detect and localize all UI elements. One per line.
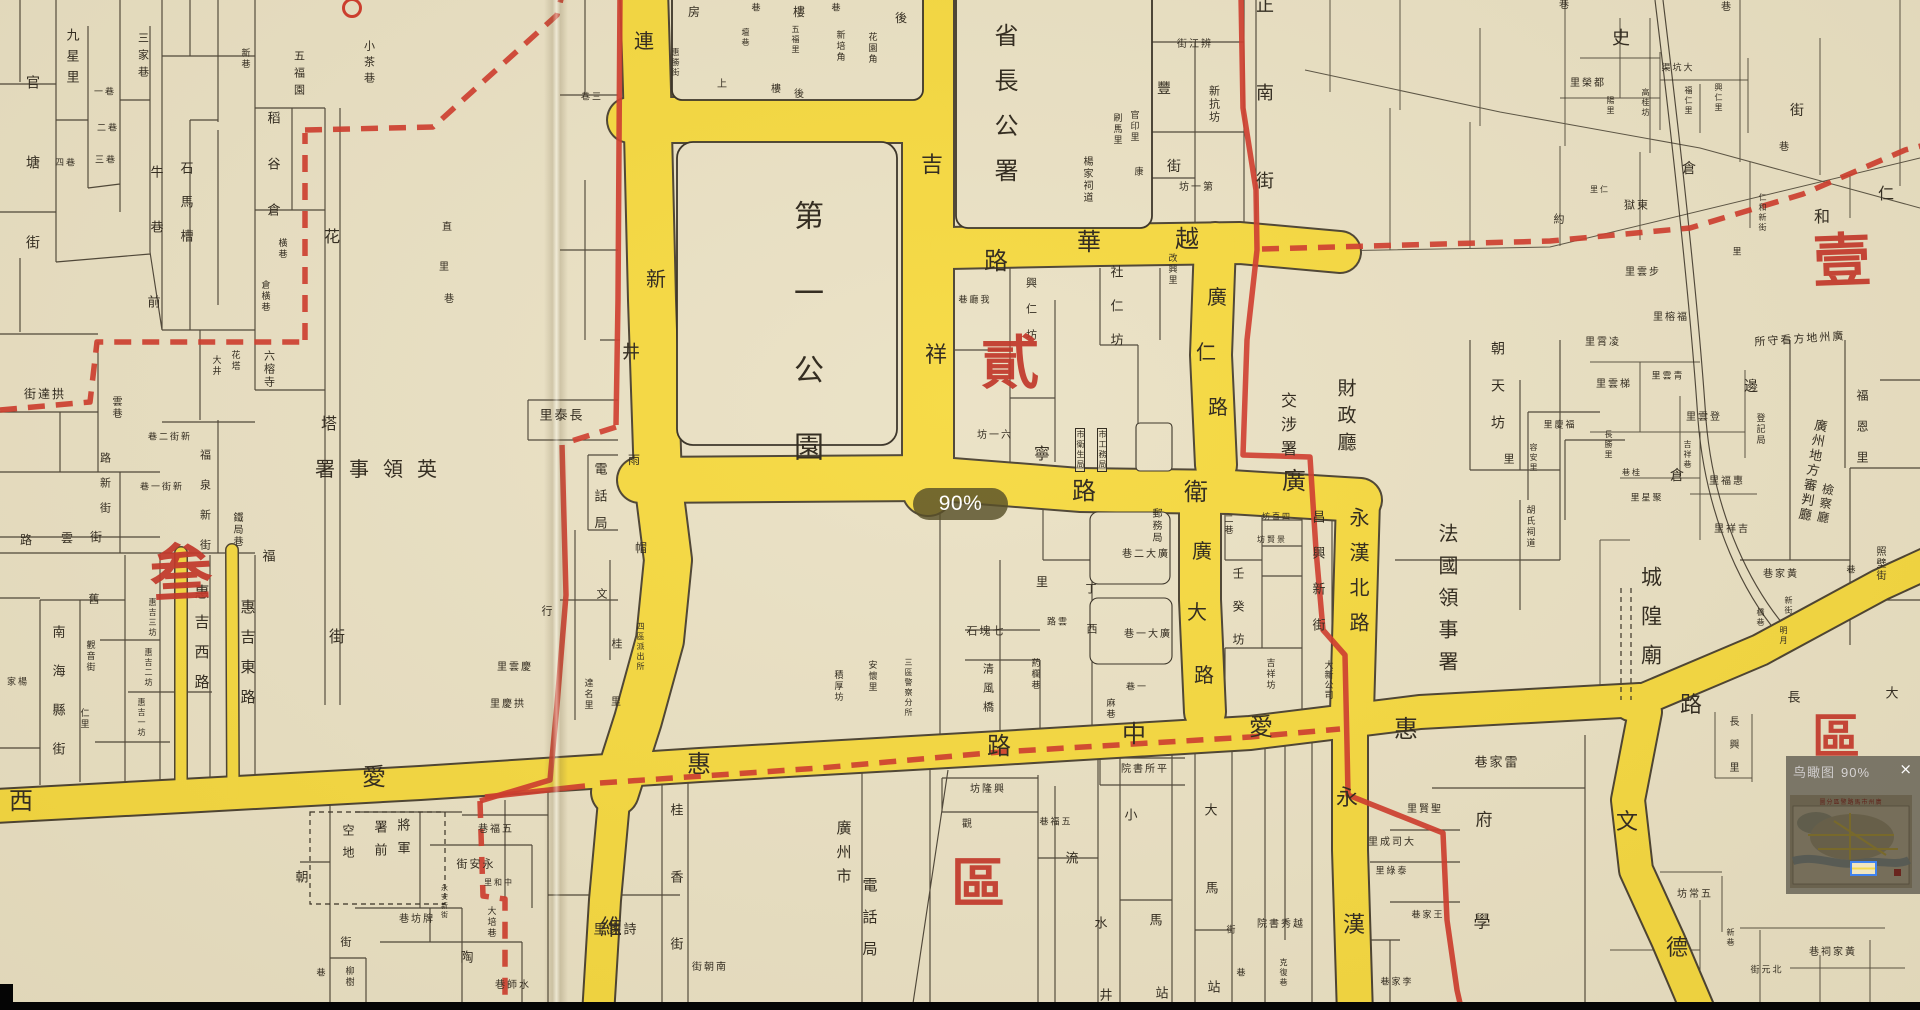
district-numeral: 區 bbox=[951, 857, 1005, 911]
map-label: 稻谷倉 bbox=[267, 111, 280, 249]
map-label: 巷桂 bbox=[1622, 469, 1642, 477]
map-label: 塔 bbox=[321, 417, 339, 433]
map-label: 路雲 bbox=[1047, 618, 1069, 627]
map-label: 陶 bbox=[460, 951, 475, 964]
map-label: 漢 bbox=[1343, 914, 1367, 936]
map-label: 里仁 bbox=[1590, 186, 1610, 194]
map-label: 學 bbox=[1474, 914, 1493, 931]
map-label: 昌興新街 bbox=[1312, 510, 1325, 654]
map-label: 朝天坊 bbox=[1489, 341, 1503, 452]
map-label: 里福惠 bbox=[1709, 477, 1745, 487]
map-viewer[interactable]: 第一公園省長公署署事領英法國領事署財政廳交涉署城隍廟廣州地方審判廳檢察廳所守看方… bbox=[0, 0, 1920, 1010]
map-label: 新培角 bbox=[836, 30, 845, 63]
birdseye-thumbnail[interactable]: 圖分區警路馬市州廣 bbox=[1790, 795, 1912, 888]
map-label: 里和中 bbox=[484, 879, 514, 887]
map-label: 克復巷 bbox=[1279, 958, 1287, 988]
map-label: 行 bbox=[542, 607, 555, 618]
map-label: 里成司大 bbox=[1368, 838, 1416, 848]
map-label: 三巷 bbox=[95, 156, 117, 165]
map-label: 二巷 bbox=[97, 124, 119, 133]
map-label: 帽 bbox=[635, 542, 649, 554]
map-label: 二巷 bbox=[1224, 514, 1233, 536]
map-label: 花塔 bbox=[231, 350, 240, 372]
map-label: 石馬槽 bbox=[180, 161, 193, 263]
map-label: 陽里 bbox=[1606, 96, 1614, 116]
map-label: 將軍 bbox=[397, 818, 410, 864]
map-label: 街江辨 bbox=[1177, 40, 1213, 50]
map-label: 新巷 bbox=[1726, 928, 1734, 948]
map-label: 倉 bbox=[1670, 470, 1686, 484]
map-label: 惠吉一坊 bbox=[137, 698, 145, 738]
map-label: 街安永 bbox=[457, 860, 496, 871]
map-label: 新 bbox=[646, 270, 668, 290]
map-label: 大培巷 bbox=[487, 906, 496, 939]
map-label: 照壁街 bbox=[1874, 546, 1884, 582]
map-label: 康 bbox=[1134, 168, 1145, 177]
birdseye-zoom-value: 90% bbox=[1841, 765, 1870, 780]
map-label: 惠 bbox=[1394, 718, 1420, 742]
map-label: 巷 bbox=[1559, 1, 1571, 11]
map-label: 史 bbox=[1612, 29, 1632, 47]
map-label: 里星聚 bbox=[1630, 494, 1663, 503]
map-label: 花園角 bbox=[868, 32, 877, 65]
map-label: 橫巷 bbox=[278, 238, 287, 260]
map-label: 水 bbox=[1094, 917, 1109, 930]
map-label: 橋巷 bbox=[1756, 608, 1764, 628]
map-label: 雨 bbox=[628, 454, 642, 466]
map-label: 里雲登 bbox=[1686, 413, 1722, 423]
map-label: 巷祠家黃 bbox=[1809, 948, 1857, 958]
map-label: 仁 bbox=[1878, 187, 1896, 203]
map-label: 後 bbox=[794, 90, 806, 100]
map-label: 巷 bbox=[444, 295, 456, 305]
map-label: 吉祥巷 bbox=[1683, 440, 1691, 470]
map-label: 壬癸坊 bbox=[1232, 567, 1244, 666]
map-label: 渠坑大 bbox=[1661, 64, 1694, 73]
map-label: 觀 bbox=[962, 820, 974, 830]
bottom-left-black-corner bbox=[0, 984, 13, 1010]
map-label: 越 bbox=[1175, 228, 1201, 252]
map-label: 巷 bbox=[831, 4, 842, 13]
map-label: 巷二大廣 bbox=[1122, 550, 1170, 560]
map-label: 牛巷 bbox=[150, 165, 163, 275]
map-label: 永漢北路 bbox=[1347, 507, 1367, 647]
map-label: 里雲步 bbox=[1625, 268, 1661, 278]
map-label: 明月 bbox=[1779, 626, 1787, 646]
map-label: 長勝里 bbox=[1604, 430, 1612, 460]
map-label: 官塘街 bbox=[24, 75, 38, 315]
district-numeral: 區 bbox=[1812, 714, 1860, 762]
map-label: 大新公司 bbox=[1324, 660, 1333, 700]
map-label: 巷家黃 bbox=[1763, 570, 1799, 580]
map-label: 里 bbox=[1504, 455, 1517, 466]
map-label: 路 bbox=[20, 534, 34, 546]
map-label: 三家巷 bbox=[137, 32, 148, 83]
map-label: 井 bbox=[622, 343, 642, 361]
map-label: 大 bbox=[1187, 603, 1209, 623]
map-label: 路 bbox=[1208, 398, 1230, 418]
map-label: 楊家祠道 bbox=[1081, 156, 1091, 204]
map-label: 站 bbox=[1155, 987, 1170, 1000]
map-label: 街 bbox=[341, 938, 354, 949]
map-label: 柳樹 bbox=[345, 966, 354, 988]
map-label: 樓 bbox=[771, 85, 783, 95]
map-label: 興仁里 bbox=[1714, 83, 1722, 113]
map-label: 小 bbox=[1124, 809, 1139, 822]
map-label: 空地 bbox=[342, 824, 354, 868]
map-label: 巷 bbox=[751, 4, 762, 13]
map-label: 福仁里 bbox=[1684, 86, 1692, 116]
map-label: 文 bbox=[597, 590, 610, 601]
map-label: 里榮都 bbox=[1570, 79, 1606, 89]
map-label: 坊喜四 bbox=[1262, 513, 1292, 521]
map-label: 巷一 bbox=[1126, 683, 1148, 692]
map-label: 法國領事署 bbox=[1436, 523, 1456, 683]
map-label: 吉 bbox=[921, 154, 945, 176]
map-label: 六榕寺 bbox=[263, 350, 274, 389]
map-label: 花 bbox=[324, 230, 342, 246]
map-label: 署前 bbox=[374, 820, 387, 866]
map-label: 里賢聖 bbox=[1407, 805, 1443, 815]
map-label: 巷 bbox=[1236, 969, 1247, 978]
map-label: 高桂坊 bbox=[1641, 88, 1649, 118]
zoom-level-badge: 90% bbox=[913, 488, 1008, 520]
map-label: 豐 bbox=[1157, 83, 1173, 97]
map-label: 市工務局 bbox=[1097, 428, 1107, 472]
map-label: 一巷 bbox=[94, 88, 116, 97]
map-label: 路新街 bbox=[99, 452, 110, 527]
map-label: 福 bbox=[262, 550, 277, 563]
map-label: 雲 bbox=[61, 532, 75, 544]
map-label: 里霄凌 bbox=[1585, 338, 1621, 348]
map-label: 鐵局巷 bbox=[231, 512, 241, 548]
map-label: 華 bbox=[1077, 231, 1103, 255]
map-label: 路 bbox=[1680, 694, 1704, 716]
map-label: 里祥吉 bbox=[1714, 525, 1750, 535]
map-label: 電話局 bbox=[861, 877, 876, 973]
map-label: 石塊七 bbox=[967, 627, 1006, 638]
map-label: 巷師水 bbox=[495, 981, 531, 991]
map-label: 南海縣街 bbox=[52, 625, 65, 781]
map-label: 院書秀越 bbox=[1257, 920, 1305, 930]
map-label: 永 bbox=[1336, 787, 1360, 809]
birdseye-close-icon[interactable]: × bbox=[1899, 760, 1912, 778]
district-numeral: 壹 bbox=[1812, 232, 1872, 292]
map-label: 仁 bbox=[1196, 343, 1218, 363]
map-label: 刷馬里 bbox=[1113, 113, 1122, 146]
map-label: 路 bbox=[1072, 480, 1098, 504]
map-label: 葯欄巷 bbox=[1031, 658, 1040, 691]
map-label: 長 bbox=[1787, 691, 1802, 704]
map-label: 後 bbox=[895, 12, 909, 24]
map-label: 里榕福 bbox=[1653, 313, 1689, 323]
district-numeral: 貳 bbox=[981, 335, 1039, 393]
map-label: 巷二街新 bbox=[148, 433, 192, 442]
map-label: 朝 bbox=[295, 871, 310, 884]
map-label: 容安里 bbox=[1529, 443, 1537, 473]
map-label: 大 bbox=[1885, 687, 1900, 700]
map-label: 福恩里 bbox=[1856, 389, 1868, 482]
map-label: 惠 bbox=[687, 753, 713, 777]
map-label: 巷福五 bbox=[478, 825, 514, 835]
map-label: 街 bbox=[1167, 161, 1183, 175]
map-label: 坊常五 bbox=[1677, 890, 1713, 900]
map-label: 巷廳我 bbox=[958, 296, 991, 305]
map-label: 街達拱 bbox=[24, 388, 66, 400]
map-label: 街 bbox=[329, 630, 347, 646]
district-numeral: 叁 bbox=[148, 542, 213, 607]
birdse​ye-title: 鸟瞰图 bbox=[1793, 765, 1835, 780]
map-label: 巷 bbox=[1721, 3, 1733, 13]
map-label: 四區派出所 bbox=[636, 622, 644, 672]
map-label: 坊一第 bbox=[1179, 183, 1215, 193]
map-label: 胡氏祠道 bbox=[1526, 505, 1535, 549]
map-label: 井 bbox=[1099, 989, 1114, 1002]
map-label: 和 bbox=[1814, 210, 1832, 226]
map-label: 壇巷 bbox=[741, 28, 749, 48]
map-label: 安懷里 bbox=[868, 660, 877, 693]
map-label: 新巷 bbox=[241, 48, 250, 70]
map-label: 城隍廟 bbox=[1640, 566, 1661, 683]
map-label: 第一公園 bbox=[790, 200, 820, 508]
map-label: 積厚坊 bbox=[834, 670, 843, 703]
map-label: 改興里 bbox=[1168, 253, 1177, 286]
map-label: 文 bbox=[1616, 811, 1640, 833]
map-label: 吉祥坊 bbox=[1266, 658, 1275, 691]
map-label: 里慶福 bbox=[1543, 421, 1576, 430]
map-label: 街元北 bbox=[1750, 966, 1783, 975]
map-label: 巷一大廣 bbox=[1124, 630, 1172, 640]
map-label: 麻巷 bbox=[1106, 698, 1115, 720]
map-label: 巷 bbox=[1846, 566, 1857, 575]
map-label: 廣州市 bbox=[835, 820, 850, 892]
map-label: 站 bbox=[1207, 981, 1222, 994]
map-label: 獄東 bbox=[1624, 201, 1650, 212]
map-label: 廣 bbox=[1192, 542, 1214, 562]
map-label: 里雲梯 bbox=[1596, 380, 1632, 390]
map-label: 仁和新街 bbox=[1758, 193, 1766, 233]
map-label: 仁里 bbox=[80, 708, 89, 730]
map-label: 惠勝街 bbox=[671, 48, 679, 78]
map-label: 廣 bbox=[1282, 470, 1308, 494]
map-label: 巷 bbox=[1779, 143, 1791, 153]
map-label: 里泰長 bbox=[539, 409, 584, 422]
map-label: 中 bbox=[1122, 723, 1148, 747]
map-label: 衛 bbox=[1184, 481, 1210, 505]
map-label: 馬 bbox=[1149, 914, 1164, 927]
map-label: 永安新街 bbox=[441, 884, 448, 920]
map-label: 路 bbox=[1194, 666, 1216, 686]
map-label: 直 bbox=[442, 223, 454, 233]
map-label: 愛 bbox=[362, 766, 388, 790]
map-label: 倉橫巷 bbox=[261, 280, 270, 313]
map-label: 街 bbox=[1790, 105, 1806, 119]
map-label: 里 bbox=[439, 263, 451, 273]
map-label: 連 bbox=[634, 32, 656, 52]
map-label: 交涉署 bbox=[1278, 392, 1294, 464]
map-label: 舊 bbox=[89, 595, 102, 606]
map-label: 觀音街 bbox=[86, 640, 95, 673]
map-label: 九星里 bbox=[66, 28, 79, 91]
map-label: 樓 bbox=[793, 6, 807, 18]
map-label: 府 bbox=[1476, 812, 1495, 829]
bottom-black-bar bbox=[0, 1002, 1920, 1010]
map-label: 電話局 bbox=[594, 462, 607, 543]
map-label: 西 bbox=[9, 790, 35, 814]
map-label: 坊賢景 bbox=[1257, 536, 1287, 544]
map-label: 登記局 bbox=[1756, 413, 1765, 446]
map-label: 坊隆興 bbox=[970, 785, 1006, 795]
map-label: 小茶巷 bbox=[363, 40, 374, 88]
map-label: 三區警察分所 bbox=[904, 658, 912, 718]
map-label: 路 bbox=[987, 735, 1013, 759]
map-label: 官印里 bbox=[1130, 110, 1139, 143]
map-label: 院書所平 bbox=[1121, 765, 1169, 775]
map-label: 新街 bbox=[1784, 596, 1792, 616]
map-label: 長興里 bbox=[1727, 716, 1737, 785]
map-label: 里 bbox=[1732, 248, 1743, 257]
map-label: 正南街 bbox=[1255, 0, 1273, 259]
birdseye-viewport-rect[interactable] bbox=[1850, 861, 1877, 876]
map-label: 馬 bbox=[1205, 882, 1220, 895]
map-label: 惠吉東路 bbox=[239, 599, 254, 719]
map-label: 巷家李 bbox=[1380, 978, 1413, 987]
map-label: 大 bbox=[1204, 804, 1219, 817]
map-label: 家楊 bbox=[7, 678, 29, 687]
map-label: 里雲青 bbox=[1651, 372, 1684, 381]
map-label: 郵務局 bbox=[1150, 508, 1160, 544]
map-label: 巷家雷 bbox=[1474, 756, 1519, 769]
map-label: 巷家王 bbox=[1411, 911, 1444, 920]
map-label: 市衛生局 bbox=[1075, 428, 1085, 472]
map-label: 桂 bbox=[612, 640, 625, 651]
map-label: 大井 bbox=[212, 355, 221, 377]
map-label: 新抗坊 bbox=[1208, 85, 1219, 124]
map-label: 署事領英 bbox=[315, 460, 451, 480]
map-label: 五福里 bbox=[791, 25, 799, 55]
birdseye-header: 鸟瞰图90% bbox=[1793, 762, 1870, 781]
map-label: 路 bbox=[984, 250, 1010, 274]
map-label: 里慶拱 bbox=[490, 700, 526, 710]
map-label: 四巷 bbox=[55, 159, 77, 168]
map-label: 巷一街新 bbox=[140, 483, 184, 492]
map-label: 里 bbox=[1036, 576, 1050, 588]
map-label: 里 bbox=[611, 698, 623, 708]
map-label: 里綠泰 bbox=[1375, 867, 1408, 876]
map-label: 丁 bbox=[1086, 585, 1099, 596]
map-label: 房 bbox=[688, 6, 702, 18]
map-label: 祥 bbox=[925, 344, 949, 366]
map-label: 清風橋 bbox=[982, 663, 993, 720]
map-label: 巷 bbox=[316, 969, 327, 978]
map-label: 廣 bbox=[1207, 288, 1229, 308]
map-label: 倉 bbox=[1682, 163, 1698, 177]
map-label: 前 bbox=[147, 296, 162, 309]
map-label: 流 bbox=[1065, 852, 1080, 865]
map-label: 里雲慶 bbox=[497, 663, 533, 673]
map-label: 德 bbox=[1666, 937, 1690, 959]
map-label: 桂香街 bbox=[670, 803, 683, 1004]
map-label: 財政廳 bbox=[1336, 378, 1355, 459]
map-label: 里家詩 bbox=[593, 923, 638, 936]
map-label: 邊 bbox=[1744, 381, 1760, 395]
map-label: 巷福五 bbox=[1039, 818, 1072, 827]
map-label: 雲巷 bbox=[110, 396, 120, 420]
map-label: 上 bbox=[717, 80, 729, 90]
map-label: 約 bbox=[1554, 215, 1567, 226]
map-label: 街 bbox=[1226, 926, 1237, 935]
map-label: 街朝南 bbox=[692, 963, 728, 973]
birdseye-panel[interactable]: 鸟瞰图90% × 圖分區警路馬市州廣 bbox=[1786, 756, 1920, 894]
map-label: 惠吉二坊 bbox=[144, 648, 152, 688]
map-label: 省長公署 bbox=[991, 23, 1015, 203]
map-label: 坊一六 bbox=[977, 431, 1013, 441]
map-label: 寧 bbox=[1034, 447, 1052, 463]
map-label: 愛 bbox=[1249, 716, 1275, 740]
first-park-block bbox=[677, 142, 897, 445]
map-label: 巷坊牌 bbox=[399, 915, 435, 925]
map-label: 社仁坊 bbox=[1110, 265, 1123, 367]
map-label: 達名里 bbox=[584, 678, 593, 711]
map-label: 西 bbox=[1087, 625, 1100, 636]
map-label: 街 bbox=[90, 531, 104, 543]
map-label: 巷三 bbox=[581, 93, 603, 102]
map-label: 五福園 bbox=[293, 50, 304, 101]
